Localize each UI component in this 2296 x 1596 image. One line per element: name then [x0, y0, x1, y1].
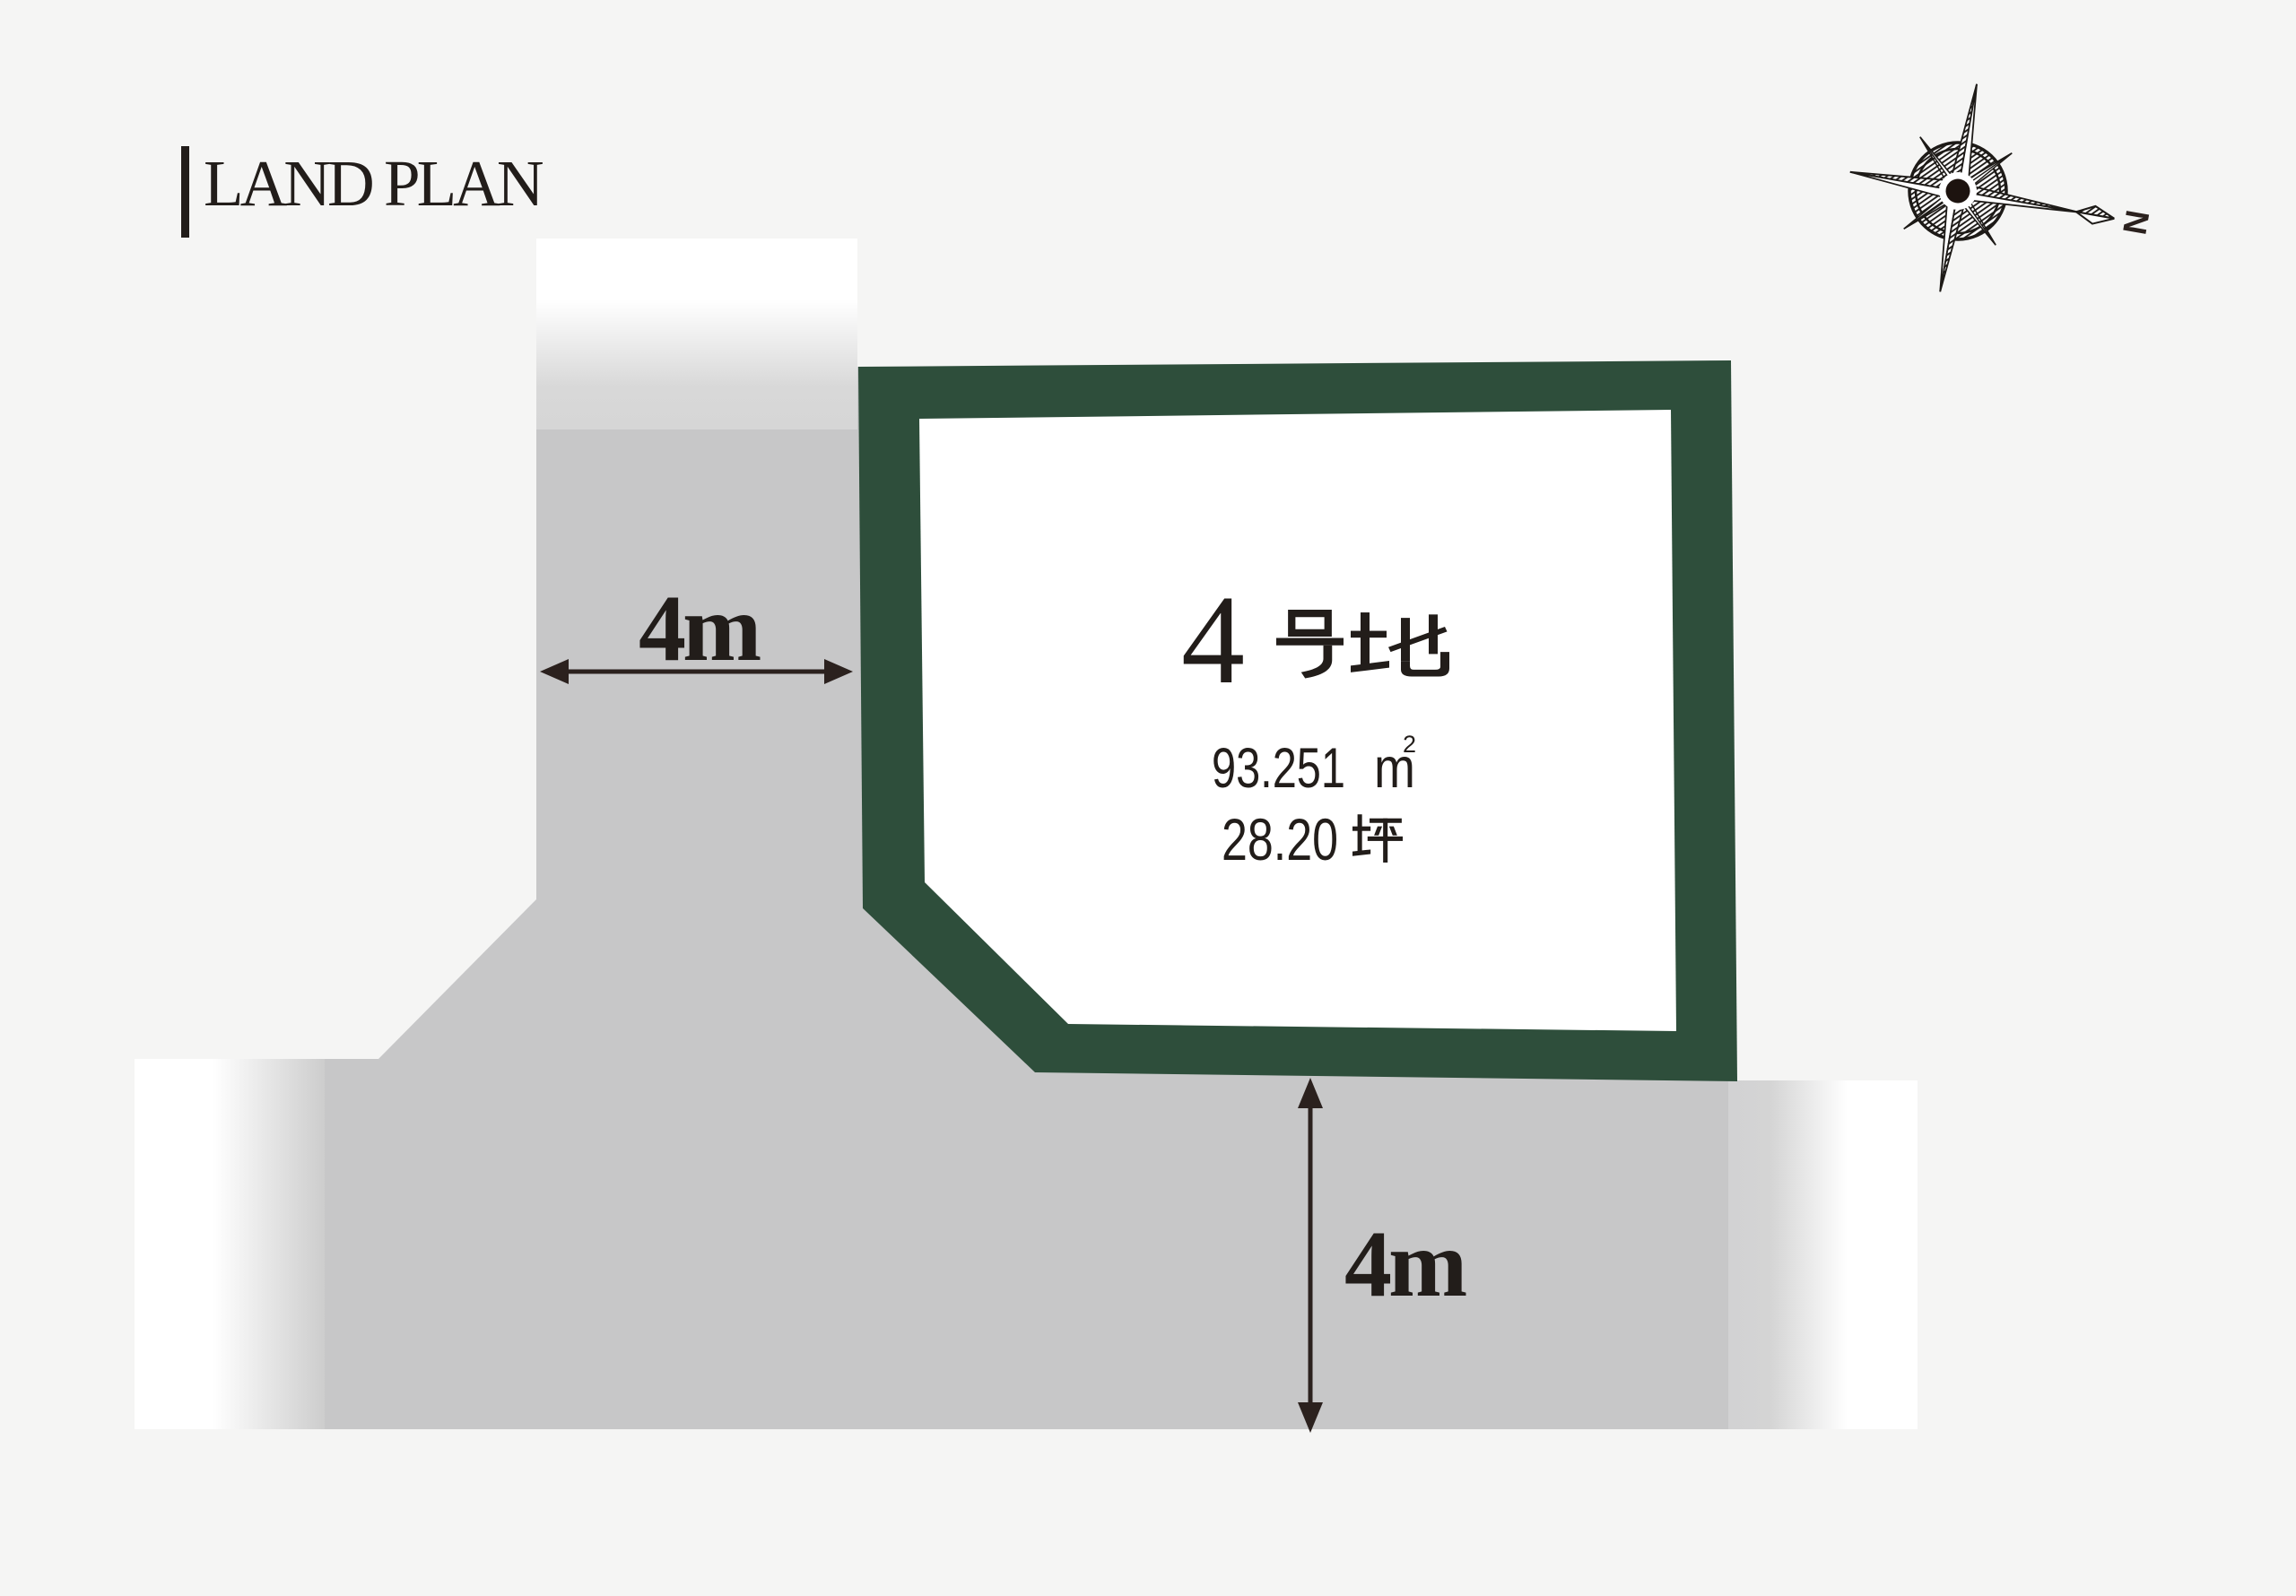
svg-text:93.251: 93.251 — [1212, 737, 1345, 800]
svg-text:4m: 4m — [1344, 1211, 1466, 1316]
svg-text:4m: 4m — [639, 576, 761, 681]
svg-text:4: 4 — [1181, 568, 1245, 710]
svg-text:28.20: 28.20 — [1222, 806, 1338, 872]
svg-text:2: 2 — [1403, 731, 1416, 758]
svg-text:LAND PLAN: LAND PLAN — [204, 147, 544, 220]
